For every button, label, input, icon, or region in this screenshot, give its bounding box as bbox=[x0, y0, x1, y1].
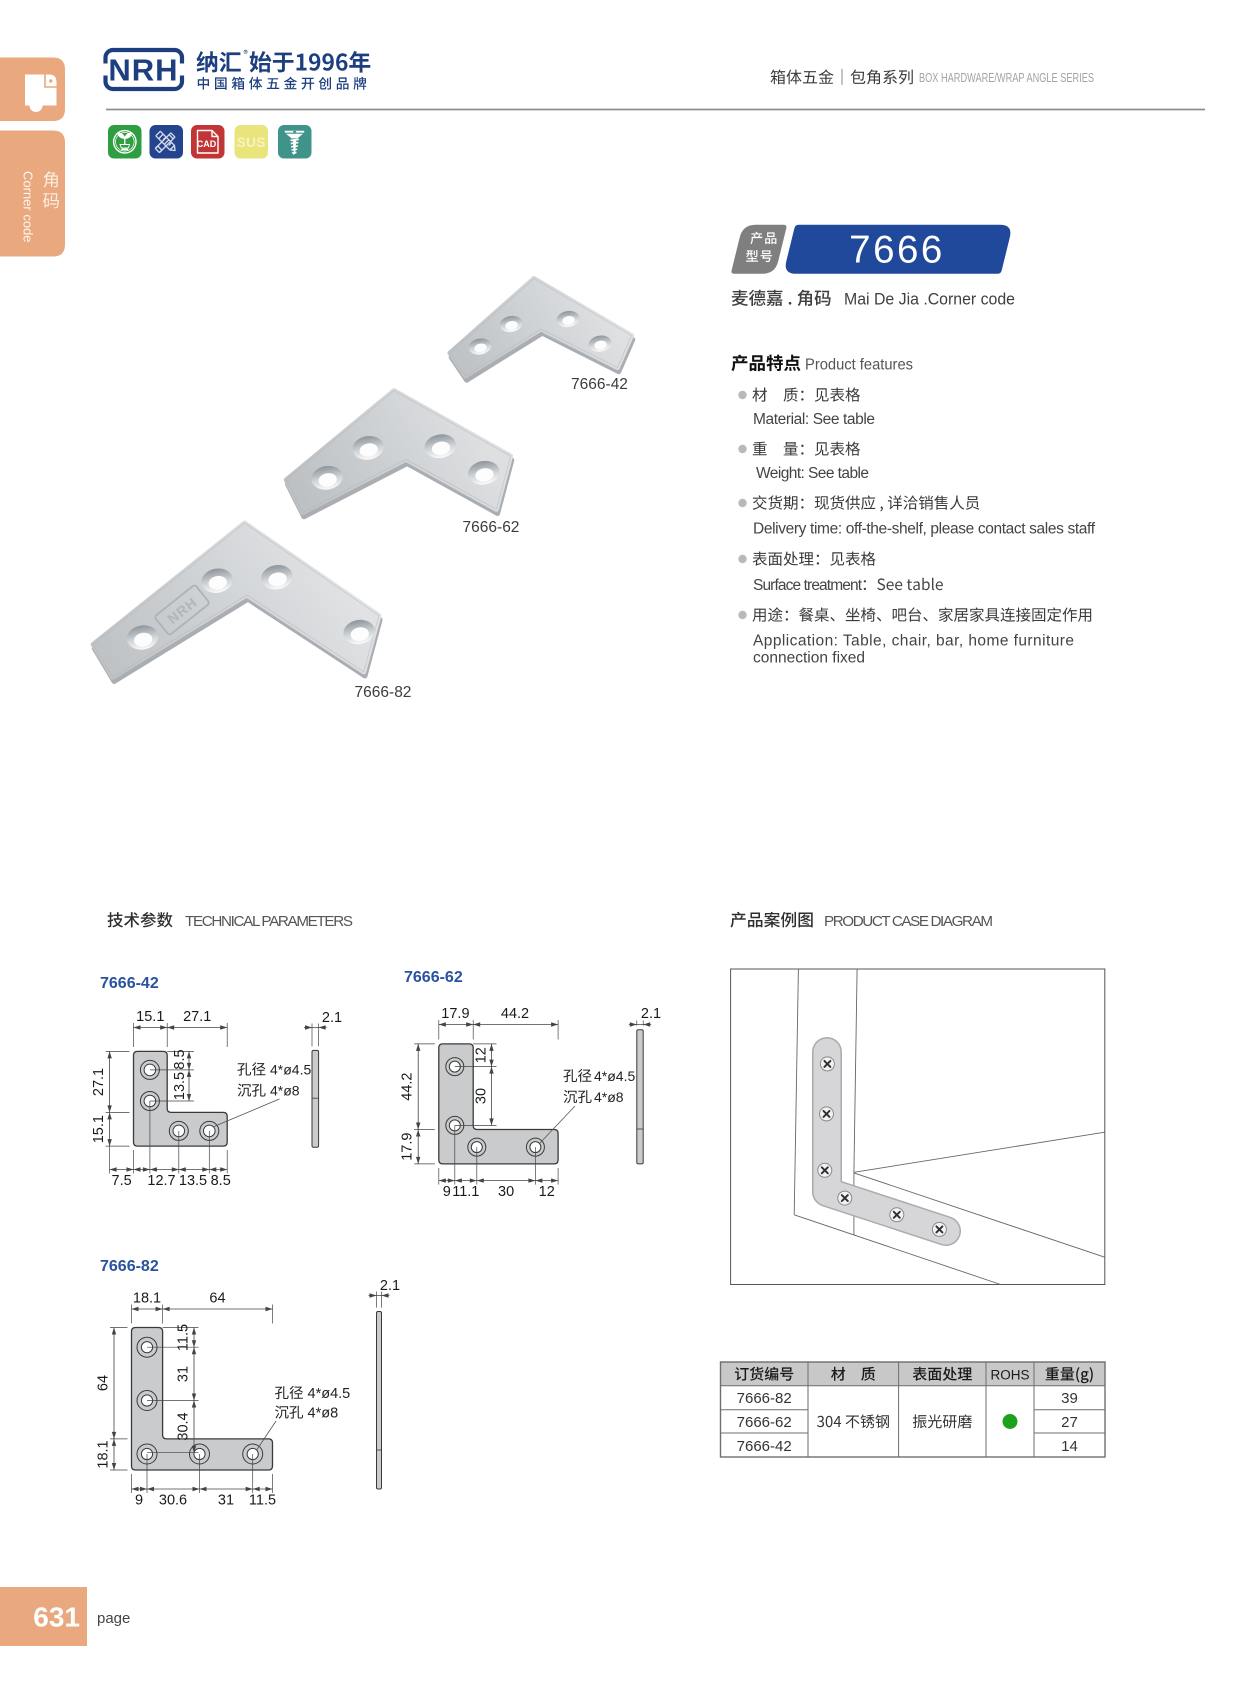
svg-text:27.1: 27.1 bbox=[91, 1068, 107, 1096]
svg-text:30: 30 bbox=[474, 1088, 490, 1104]
svg-text:12: 12 bbox=[474, 1047, 490, 1063]
svg-text:Delivery time: off-the-shelf,: Delivery time: off-the-shelf, please con… bbox=[753, 521, 1096, 538]
svg-text:7666-62: 7666-62 bbox=[737, 1414, 792, 1431]
svg-text:4*ø8: 4*ø8 bbox=[270, 1083, 300, 1099]
svg-text:7666-42: 7666-42 bbox=[100, 975, 159, 992]
svg-text:631: 631 bbox=[33, 1602, 80, 1633]
svg-text:PRODUCT CASE DIAGRAM: PRODUCT CASE DIAGRAM bbox=[824, 913, 993, 930]
svg-text:18.1: 18.1 bbox=[96, 1440, 112, 1468]
svg-text:39: 39 bbox=[1061, 1390, 1078, 1407]
svg-text:11.5: 11.5 bbox=[249, 1493, 276, 1509]
svg-text:44.2: 44.2 bbox=[400, 1073, 416, 1101]
svg-text:7666-42: 7666-42 bbox=[737, 1438, 792, 1455]
svg-text:page: page bbox=[97, 1610, 130, 1627]
svg-text:8.5: 8.5 bbox=[211, 1173, 231, 1189]
svg-text:BOX HARDWARE/WRAP ANGLE SERIES: BOX HARDWARE/WRAP ANGLE SERIES bbox=[919, 71, 1094, 85]
svg-text:4*ø4.5: 4*ø4.5 bbox=[270, 1062, 311, 1078]
svg-text:4*ø8: 4*ø8 bbox=[308, 1406, 339, 1422]
svg-text:2.1: 2.1 bbox=[641, 1006, 661, 1022]
svg-text:30: 30 bbox=[498, 1184, 514, 1200]
svg-text:31: 31 bbox=[218, 1493, 234, 1509]
svg-text:4*ø4.5: 4*ø4.5 bbox=[594, 1068, 635, 1084]
svg-text:31: 31 bbox=[176, 1366, 192, 1382]
svg-text:7666: 7666 bbox=[849, 229, 945, 272]
svg-text:CAD: CAD bbox=[197, 139, 217, 149]
svg-text:11.5: 11.5 bbox=[176, 1324, 192, 1351]
svg-text:7666-82: 7666-82 bbox=[100, 1258, 159, 1275]
svg-text:7666-42: 7666-42 bbox=[571, 376, 628, 393]
svg-text:Mai De Jia .Corner code: Mai De Jia .Corner code bbox=[844, 290, 1015, 309]
svg-text:4*ø4.5: 4*ø4.5 bbox=[308, 1386, 351, 1402]
svg-text:12.7: 12.7 bbox=[147, 1173, 175, 1189]
svg-text:15.1: 15.1 bbox=[136, 1009, 164, 1025]
svg-text:2.1: 2.1 bbox=[322, 1010, 342, 1026]
svg-text:7666-62: 7666-62 bbox=[463, 519, 520, 536]
svg-text:Surface treatment: Surface treatment bbox=[753, 577, 863, 594]
svg-text:17.9: 17.9 bbox=[441, 1006, 469, 1022]
svg-text:44.2: 44.2 bbox=[501, 1006, 529, 1022]
svg-text:8.5: 8.5 bbox=[172, 1049, 188, 1069]
svg-text:13.5: 13.5 bbox=[179, 1173, 207, 1189]
svg-text:9: 9 bbox=[443, 1184, 451, 1200]
svg-text:SUS: SUS bbox=[237, 135, 266, 150]
svg-text:Product features: Product features bbox=[805, 357, 913, 374]
svg-text:TECHNICAL PARAMETERS: TECHNICAL PARAMETERS bbox=[185, 913, 353, 930]
svg-text:Corner code: Corner code bbox=[21, 171, 36, 243]
svg-text:11.1: 11.1 bbox=[452, 1184, 479, 1200]
svg-text:27.1: 27.1 bbox=[183, 1009, 211, 1025]
svg-text:Application: Table, chair, ba: Application: Table, chair, bar, home fur… bbox=[753, 633, 1074, 650]
svg-text:9: 9 bbox=[135, 1493, 143, 1509]
svg-text:ROHS: ROHS bbox=[990, 1368, 1029, 1383]
svg-text:13.5: 13.5 bbox=[172, 1072, 188, 1100]
svg-text:64: 64 bbox=[209, 1291, 225, 1307]
svg-text:7666-62: 7666-62 bbox=[404, 969, 463, 986]
svg-text:18.1: 18.1 bbox=[133, 1291, 161, 1307]
svg-text:27: 27 bbox=[1061, 1414, 1078, 1431]
svg-text:12: 12 bbox=[539, 1184, 555, 1200]
svg-text:14: 14 bbox=[1061, 1438, 1078, 1455]
svg-text:7666-82: 7666-82 bbox=[355, 684, 412, 701]
svg-text:30.6: 30.6 bbox=[159, 1493, 187, 1509]
svg-text:4*ø8: 4*ø8 bbox=[594, 1089, 624, 1105]
svg-text:64: 64 bbox=[96, 1375, 112, 1391]
svg-text:30.4: 30.4 bbox=[176, 1412, 192, 1440]
svg-text:connection fixed: connection fixed bbox=[753, 650, 865, 667]
svg-text:15.1: 15.1 bbox=[91, 1115, 107, 1143]
svg-text:2.1: 2.1 bbox=[380, 1278, 400, 1294]
svg-text:7666-82: 7666-82 bbox=[737, 1390, 792, 1407]
svg-text:7.5: 7.5 bbox=[112, 1173, 132, 1189]
svg-text:Weight: See table: Weight: See table bbox=[756, 465, 869, 482]
svg-text:NRH: NRH bbox=[108, 53, 178, 88]
svg-text:17.9: 17.9 bbox=[400, 1133, 416, 1161]
svg-text:Material: See table: Material: See table bbox=[753, 411, 875, 428]
